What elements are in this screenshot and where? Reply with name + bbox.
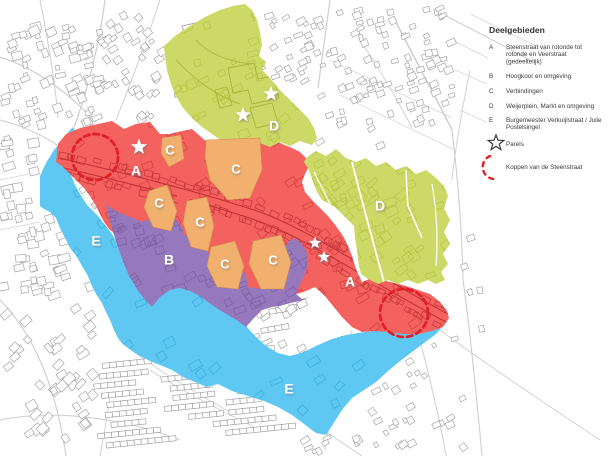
svg-text:B: B xyxy=(164,252,174,268)
svg-text:C: C xyxy=(268,252,278,267)
svg-text:Verbindingen: Verbindingen xyxy=(506,88,543,95)
svg-text:C: C xyxy=(195,214,205,229)
svg-text:C: C xyxy=(231,161,241,176)
svg-text:Steenstraat van rotonde tot: Steenstraat van rotonde tot xyxy=(506,44,582,51)
svg-text:(gedeeltelijk): (gedeeltelijk) xyxy=(506,58,542,65)
svg-text:C: C xyxy=(154,195,164,210)
svg-text:Burgemeester Verkuijlstraat /: Burgemeester Verkuijlstraat / Julie xyxy=(506,117,602,124)
svg-text:E: E xyxy=(91,233,100,249)
svg-text:D: D xyxy=(375,198,385,214)
svg-text:D: D xyxy=(489,103,494,110)
svg-text:C: C xyxy=(165,142,175,157)
svg-text:Weijerplein, Markt en omgeving: Weijerplein, Markt en omgeving xyxy=(506,103,595,110)
svg-text:Parels: Parels xyxy=(506,141,524,148)
svg-text:D: D xyxy=(269,118,279,134)
svg-text:A: A xyxy=(131,163,141,179)
svg-text:rotonde en Veerstraat: rotonde en Veerstraat xyxy=(506,51,567,58)
svg-text:C: C xyxy=(489,88,494,95)
svg-text:A: A xyxy=(345,274,355,290)
svg-text:B: B xyxy=(489,73,493,80)
svg-text:Deelgebieden: Deelgebieden xyxy=(489,25,545,35)
svg-text:E: E xyxy=(489,117,493,124)
svg-text:E: E xyxy=(284,381,293,397)
svg-text:C: C xyxy=(220,256,230,271)
svg-text:Hoogkoor en omgeving: Hoogkoor en omgeving xyxy=(506,73,572,80)
svg-text:Koppen van de Steenstraat: Koppen van de Steenstraat xyxy=(506,164,583,171)
svg-text:Postelsingel: Postelsingel xyxy=(506,124,540,131)
